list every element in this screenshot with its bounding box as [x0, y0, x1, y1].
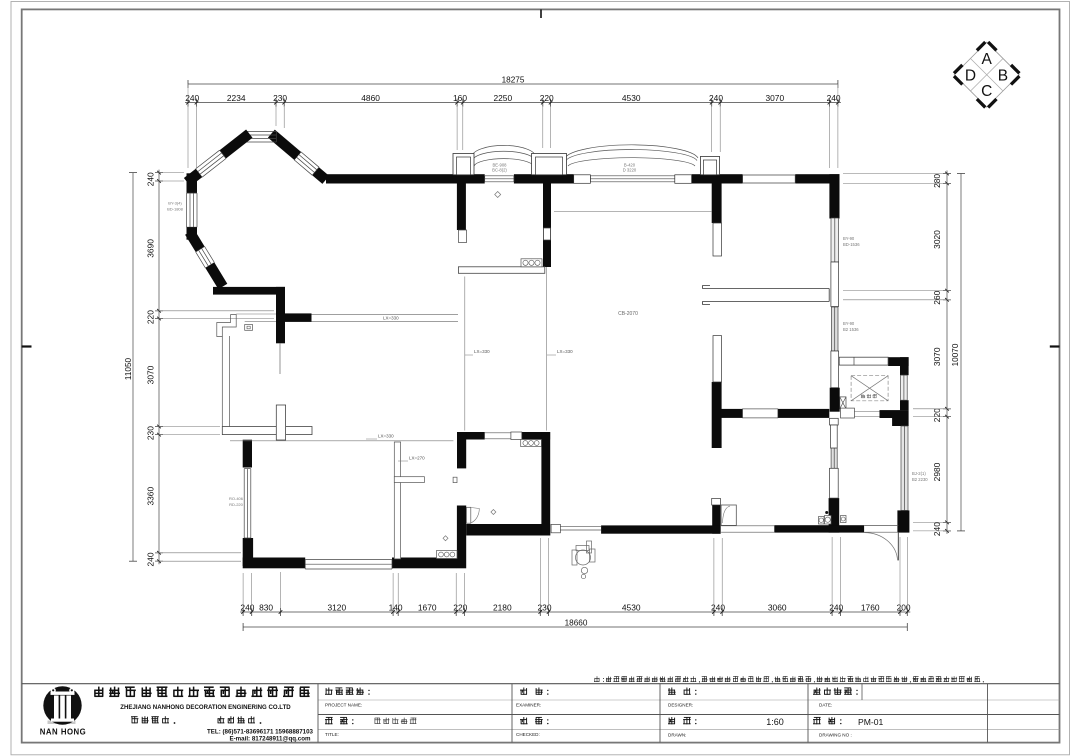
- svg-text:DRAWING NO :: DRAWING NO :: [819, 733, 852, 738]
- svg-text:4860: 4860: [361, 93, 380, 103]
- svg-text:BD-1536: BD-1536: [843, 242, 860, 247]
- svg-text:3020: 3020: [932, 230, 942, 249]
- svg-text:2180: 2180: [493, 602, 512, 612]
- svg-text:230: 230: [273, 93, 287, 103]
- svg-text:230: 230: [538, 602, 552, 612]
- svg-text:18275: 18275: [502, 76, 525, 85]
- svg-text:B2 2230: B2 2230: [912, 477, 928, 482]
- svg-text:260: 260: [932, 290, 942, 304]
- svg-text:240: 240: [709, 93, 723, 103]
- svg-text:RD-220: RD-220: [229, 502, 244, 507]
- svg-text:220: 220: [453, 602, 467, 612]
- svg-text:LX=270: LX=270: [409, 456, 425, 461]
- svg-text:3060: 3060: [768, 602, 787, 612]
- svg-text:D: D: [965, 67, 976, 84]
- svg-text:3360: 3360: [146, 487, 156, 506]
- svg-text:1760: 1760: [861, 602, 880, 612]
- svg-text:2980: 2980: [932, 462, 942, 481]
- svg-text:2234: 2234: [227, 93, 246, 103]
- svg-text:BY-90: BY-90: [843, 236, 855, 241]
- svg-text:EXAMINER:: EXAMINER:: [516, 702, 541, 707]
- svg-text:BD-1808: BD-1808: [167, 207, 184, 212]
- svg-text:C: C: [981, 83, 992, 100]
- svg-text:2250: 2250: [493, 93, 512, 103]
- svg-text:240: 240: [932, 522, 942, 536]
- svg-text:1:60: 1:60: [766, 717, 784, 727]
- svg-text:220: 220: [932, 408, 942, 422]
- svg-text:B: B: [998, 67, 1008, 84]
- svg-text:3070: 3070: [765, 93, 784, 103]
- svg-text:LX=330: LX=330: [378, 434, 394, 439]
- svg-text:B2 1536: B2 1536: [843, 327, 859, 332]
- svg-text:220: 220: [146, 310, 156, 324]
- svg-text:3070: 3070: [146, 365, 156, 384]
- svg-text:TITLE:: TITLE:: [325, 732, 339, 737]
- svg-text:A: A: [982, 51, 993, 68]
- svg-text:3120: 3120: [327, 602, 346, 612]
- svg-text:4530: 4530: [622, 602, 641, 612]
- svg-text:LX=330: LX=330: [383, 316, 399, 321]
- svg-text:CHECKED:: CHECKED:: [516, 732, 540, 737]
- svg-text:240: 240: [711, 602, 725, 612]
- svg-text:ZHEJIANG NANHONG DECORATION EN: ZHEJIANG NANHONG DECORATION ENGINERING C…: [120, 704, 291, 711]
- svg-text:240: 240: [240, 602, 254, 612]
- svg-text:CB-2070: CB-2070: [618, 311, 638, 317]
- svg-text:230: 230: [146, 426, 156, 440]
- svg-text:830: 830: [259, 602, 273, 612]
- svg-text:D 3220: D 3220: [623, 168, 637, 173]
- svg-text:3070: 3070: [932, 347, 942, 366]
- svg-text:140: 140: [389, 602, 403, 612]
- svg-text:RO-406: RO-406: [229, 496, 244, 501]
- svg-text:BJ-2(1): BJ-2(1): [912, 471, 926, 476]
- svg-text:DESIGNER:: DESIGNER:: [668, 702, 693, 707]
- svg-text:1670: 1670: [418, 602, 437, 612]
- svg-text:TEL: (86)571-83696171 1596888: TEL: (86)571-83696171 15968887103: [207, 729, 314, 736]
- svg-text:200: 200: [897, 602, 911, 612]
- svg-text:DRAWN:: DRAWN:: [668, 733, 686, 738]
- svg-text:240: 240: [146, 552, 156, 566]
- svg-text:LX=330: LX=330: [557, 349, 573, 354]
- svg-text:4530: 4530: [622, 93, 641, 103]
- svg-text:PROJECT NAME:: PROJECT NAME:: [325, 702, 362, 707]
- svg-text:11050: 11050: [124, 357, 133, 380]
- svg-text:BY-3(4): BY-3(4): [168, 201, 182, 206]
- svg-text:160: 160: [453, 93, 467, 103]
- svg-text:220: 220: [540, 93, 554, 103]
- svg-text:240: 240: [829, 602, 843, 612]
- svg-text:18660: 18660: [565, 619, 588, 628]
- svg-text:240: 240: [146, 172, 156, 186]
- svg-text:280: 280: [932, 174, 942, 188]
- svg-text:E-mail: 817248911@qq.com: E-mail: 817248911@qq.com: [229, 736, 311, 743]
- svg-text:DATE:: DATE:: [819, 702, 832, 707]
- svg-text:PM-01: PM-01: [858, 717, 884, 727]
- svg-text:3690: 3690: [146, 239, 156, 258]
- svg-text:10070: 10070: [951, 343, 960, 366]
- svg-text:BY-90: BY-90: [843, 321, 855, 326]
- svg-text:240: 240: [827, 93, 841, 103]
- svg-text:NAN HONG: NAN HONG: [40, 728, 86, 737]
- svg-text:240: 240: [185, 93, 199, 103]
- svg-text:BC-8(2): BC-8(2): [492, 168, 507, 173]
- svg-text:LX=330: LX=330: [474, 349, 490, 354]
